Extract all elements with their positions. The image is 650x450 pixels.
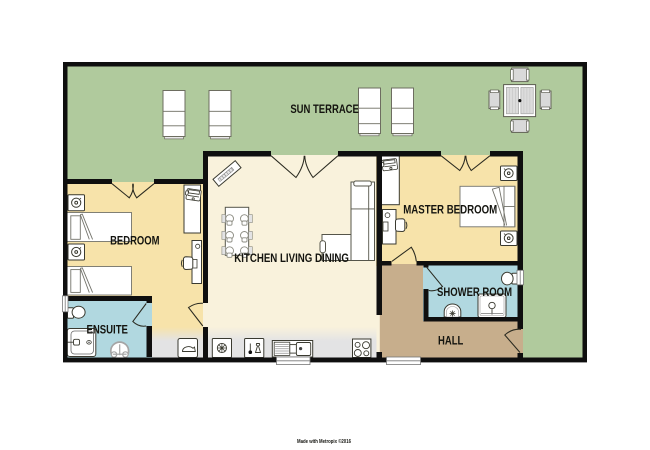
svg-text:ENSUITE: ENSUITE (86, 324, 128, 336)
svg-text:BEDROOM: BEDROOM (110, 235, 159, 247)
svg-text:KITCHEN LIVING DINING: KITCHEN LIVING DINING (234, 253, 349, 265)
svg-text:SUN TERRACE: SUN TERRACE (290, 104, 359, 116)
svg-text:MASTER BEDROOM: MASTER BEDROOM (403, 205, 497, 217)
svg-text:HALL: HALL (438, 336, 463, 348)
svg-text:SHOWER ROOM: SHOWER ROOM (437, 287, 512, 299)
svg-text:Made with Metropix ©2016: Made with Metropix ©2016 (297, 438, 351, 445)
